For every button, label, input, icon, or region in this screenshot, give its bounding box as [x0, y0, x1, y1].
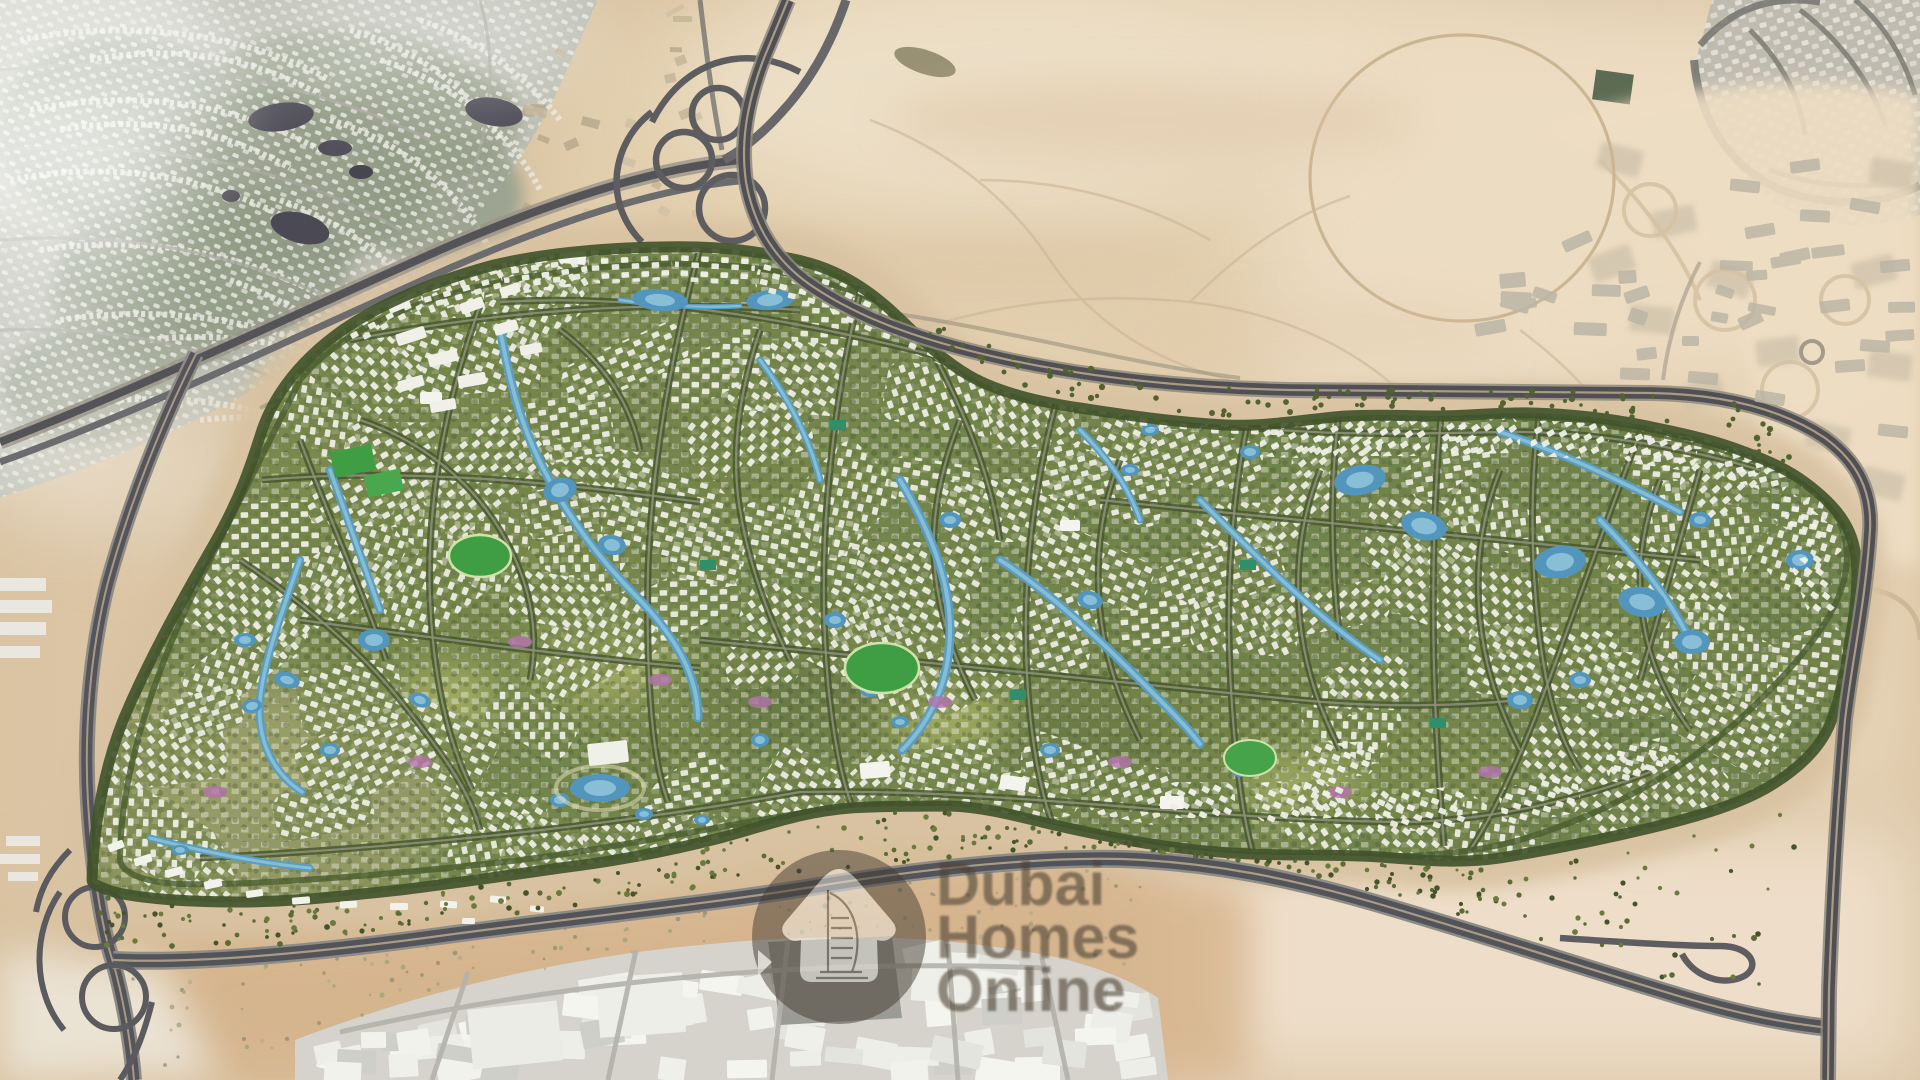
svg-text:Online: Online [936, 956, 1126, 1024]
